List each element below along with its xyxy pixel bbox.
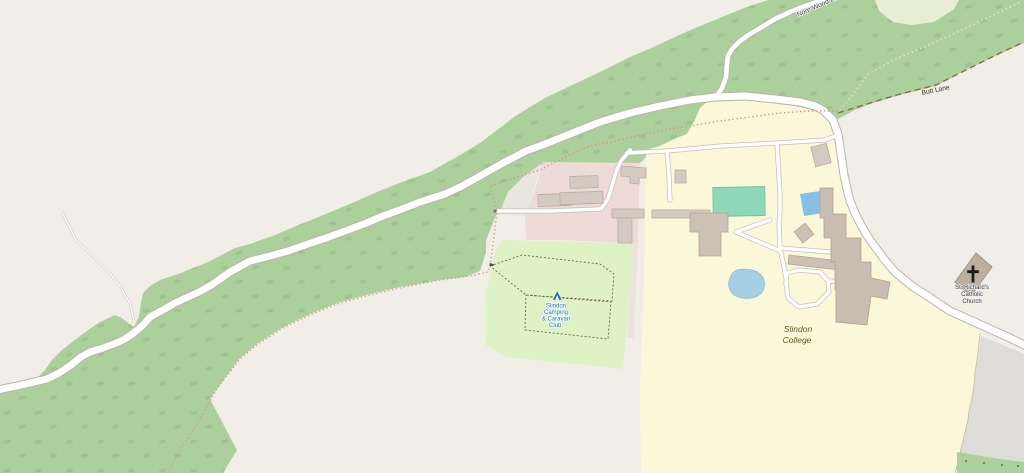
svg-text:Club.: Club. [549, 323, 563, 329]
svg-text:Church: Church [962, 299, 981, 305]
svg-text:Slindon: Slindon [784, 324, 813, 334]
svg-text:St. Richard's: St. Richard's [955, 285, 989, 291]
svg-text:& Caravan: & Caravan [542, 317, 570, 323]
svg-text:College: College [783, 335, 812, 345]
svg-text:Slindon: Slindon [546, 304, 566, 310]
svg-text:Camping: Camping [544, 310, 568, 316]
svg-text:Catholic: Catholic [961, 292, 983, 298]
